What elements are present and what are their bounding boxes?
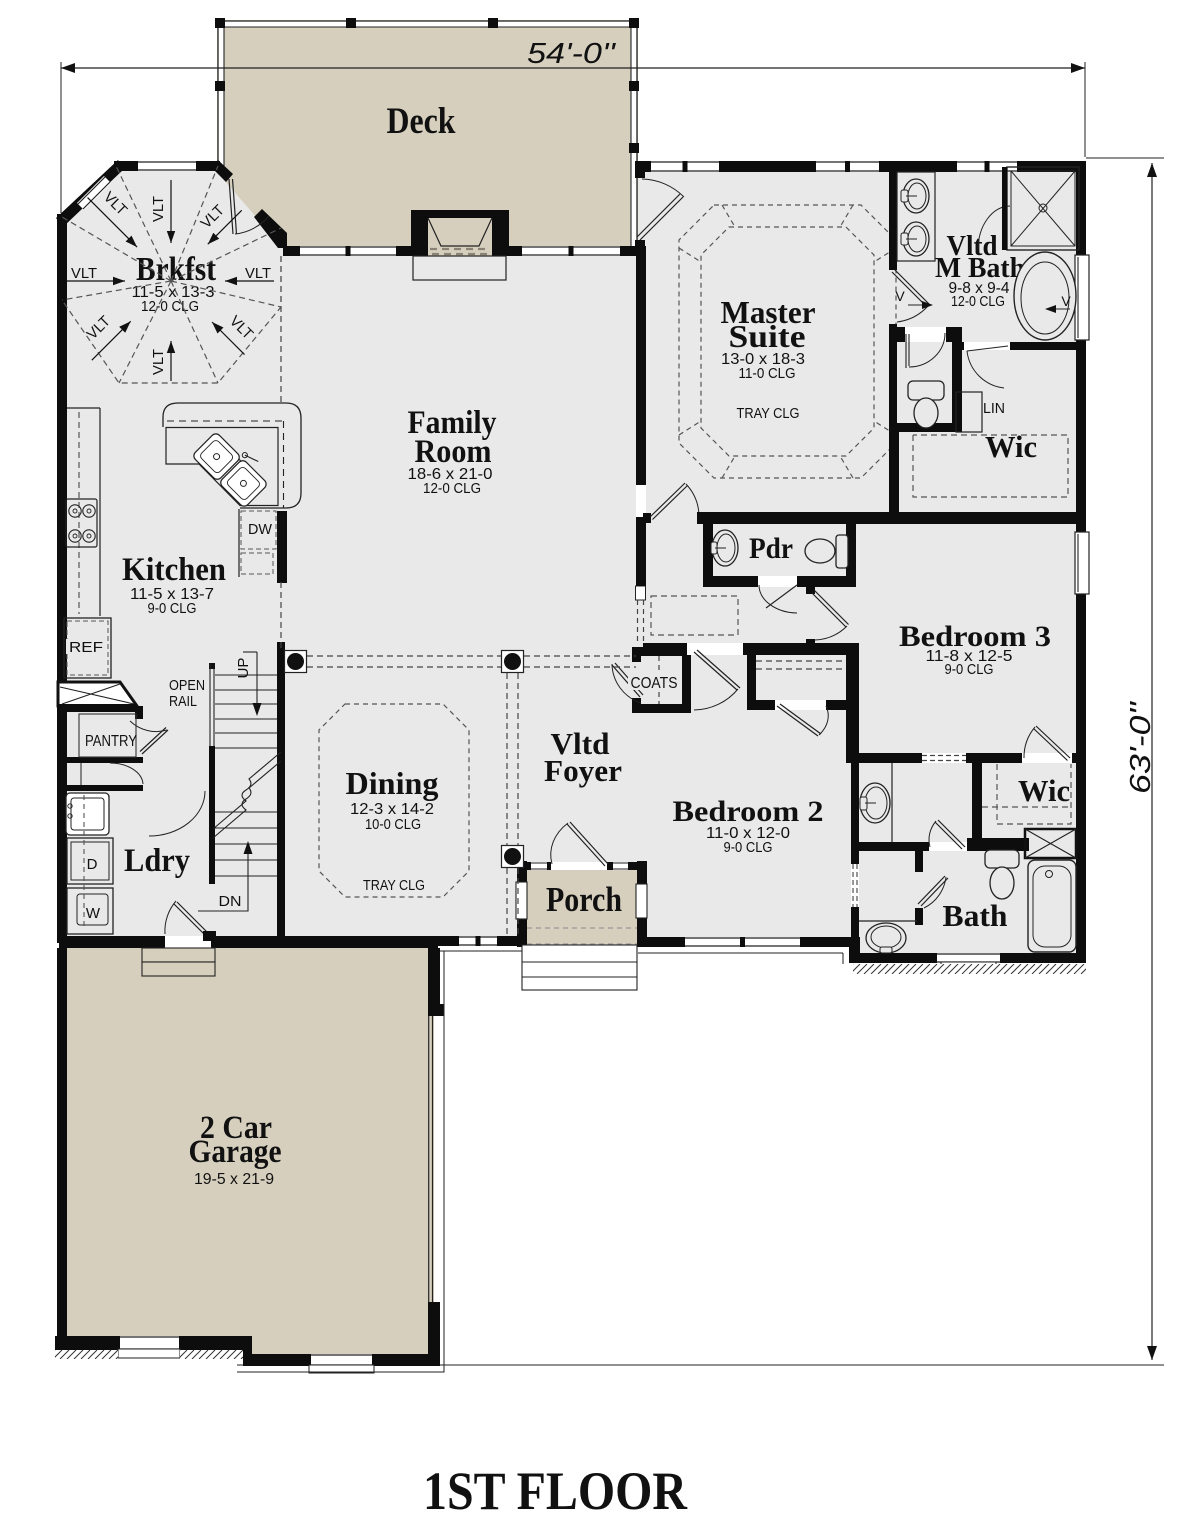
svg-text:VLT: VLT [71,265,97,282]
svg-text:Dining: Dining [346,765,439,801]
svg-text:TRAY CLG: TRAY CLG [363,877,425,894]
svg-text:DW: DW [248,521,273,538]
svg-text:12-0 CLG: 12-0 CLG [423,480,481,497]
svg-text:RAIL: RAIL [169,693,197,710]
svg-text:V: V [895,288,905,304]
svg-text:9-0 CLG: 9-0 CLG [148,600,197,617]
svg-text:Deck: Deck [387,101,456,142]
svg-text:DN: DN [219,893,242,910]
svg-text:12-0 CLG: 12-0 CLG [141,298,199,315]
svg-text:VLT: VLT [245,265,271,282]
svg-text:Pdr: Pdr [749,532,793,565]
svg-text:Wic: Wic [1018,773,1070,808]
svg-text:Garage: Garage [189,1134,282,1170]
svg-text:12-0 CLG: 12-0 CLG [951,293,1005,310]
svg-text:10-0 CLG: 10-0 CLG [365,816,421,833]
svg-text:9-0 CLG: 9-0 CLG [945,661,994,678]
svg-text:TRAY CLG: TRAY CLG [737,405,800,422]
svg-text:Wic: Wic [985,429,1037,464]
svg-text:Porch: Porch [546,880,622,919]
svg-text:Room: Room [415,434,492,470]
svg-text:9-0 CLG: 9-0 CLG [724,839,773,856]
svg-text:OPEN: OPEN [169,677,205,694]
svg-text:VLT: VLT [150,196,167,222]
svg-text:Suite: Suite [729,318,806,354]
svg-text:COATS: COATS [631,675,678,692]
svg-text:PANTRY: PANTRY [85,733,137,750]
svg-text:VLT: VLT [150,349,167,375]
svg-text:54'-0'': 54'-0'' [527,38,617,70]
svg-text:W: W [86,905,101,922]
svg-text:D: D [87,856,98,873]
svg-text:UP: UP [235,658,252,679]
svg-text:Bedroom 2: Bedroom 2 [673,795,824,828]
svg-text:Foyer: Foyer [544,753,622,788]
svg-text:19-5 x 21-9: 19-5 x 21-9 [194,1171,274,1188]
svg-text:1ST FLOOR: 1ST FLOOR [423,1461,688,1521]
svg-text:LIN: LIN [983,400,1005,417]
svg-text:V: V [1061,293,1071,309]
svg-text:Bath: Bath [943,898,1008,933]
svg-text:63'-0'': 63'-0'' [1125,700,1157,794]
svg-text:Kitchen: Kitchen [122,552,226,588]
svg-text:Ldry: Ldry [124,843,190,879]
svg-text:REF: REF [69,639,103,656]
svg-text:11-0 CLG: 11-0 CLG [739,365,796,382]
